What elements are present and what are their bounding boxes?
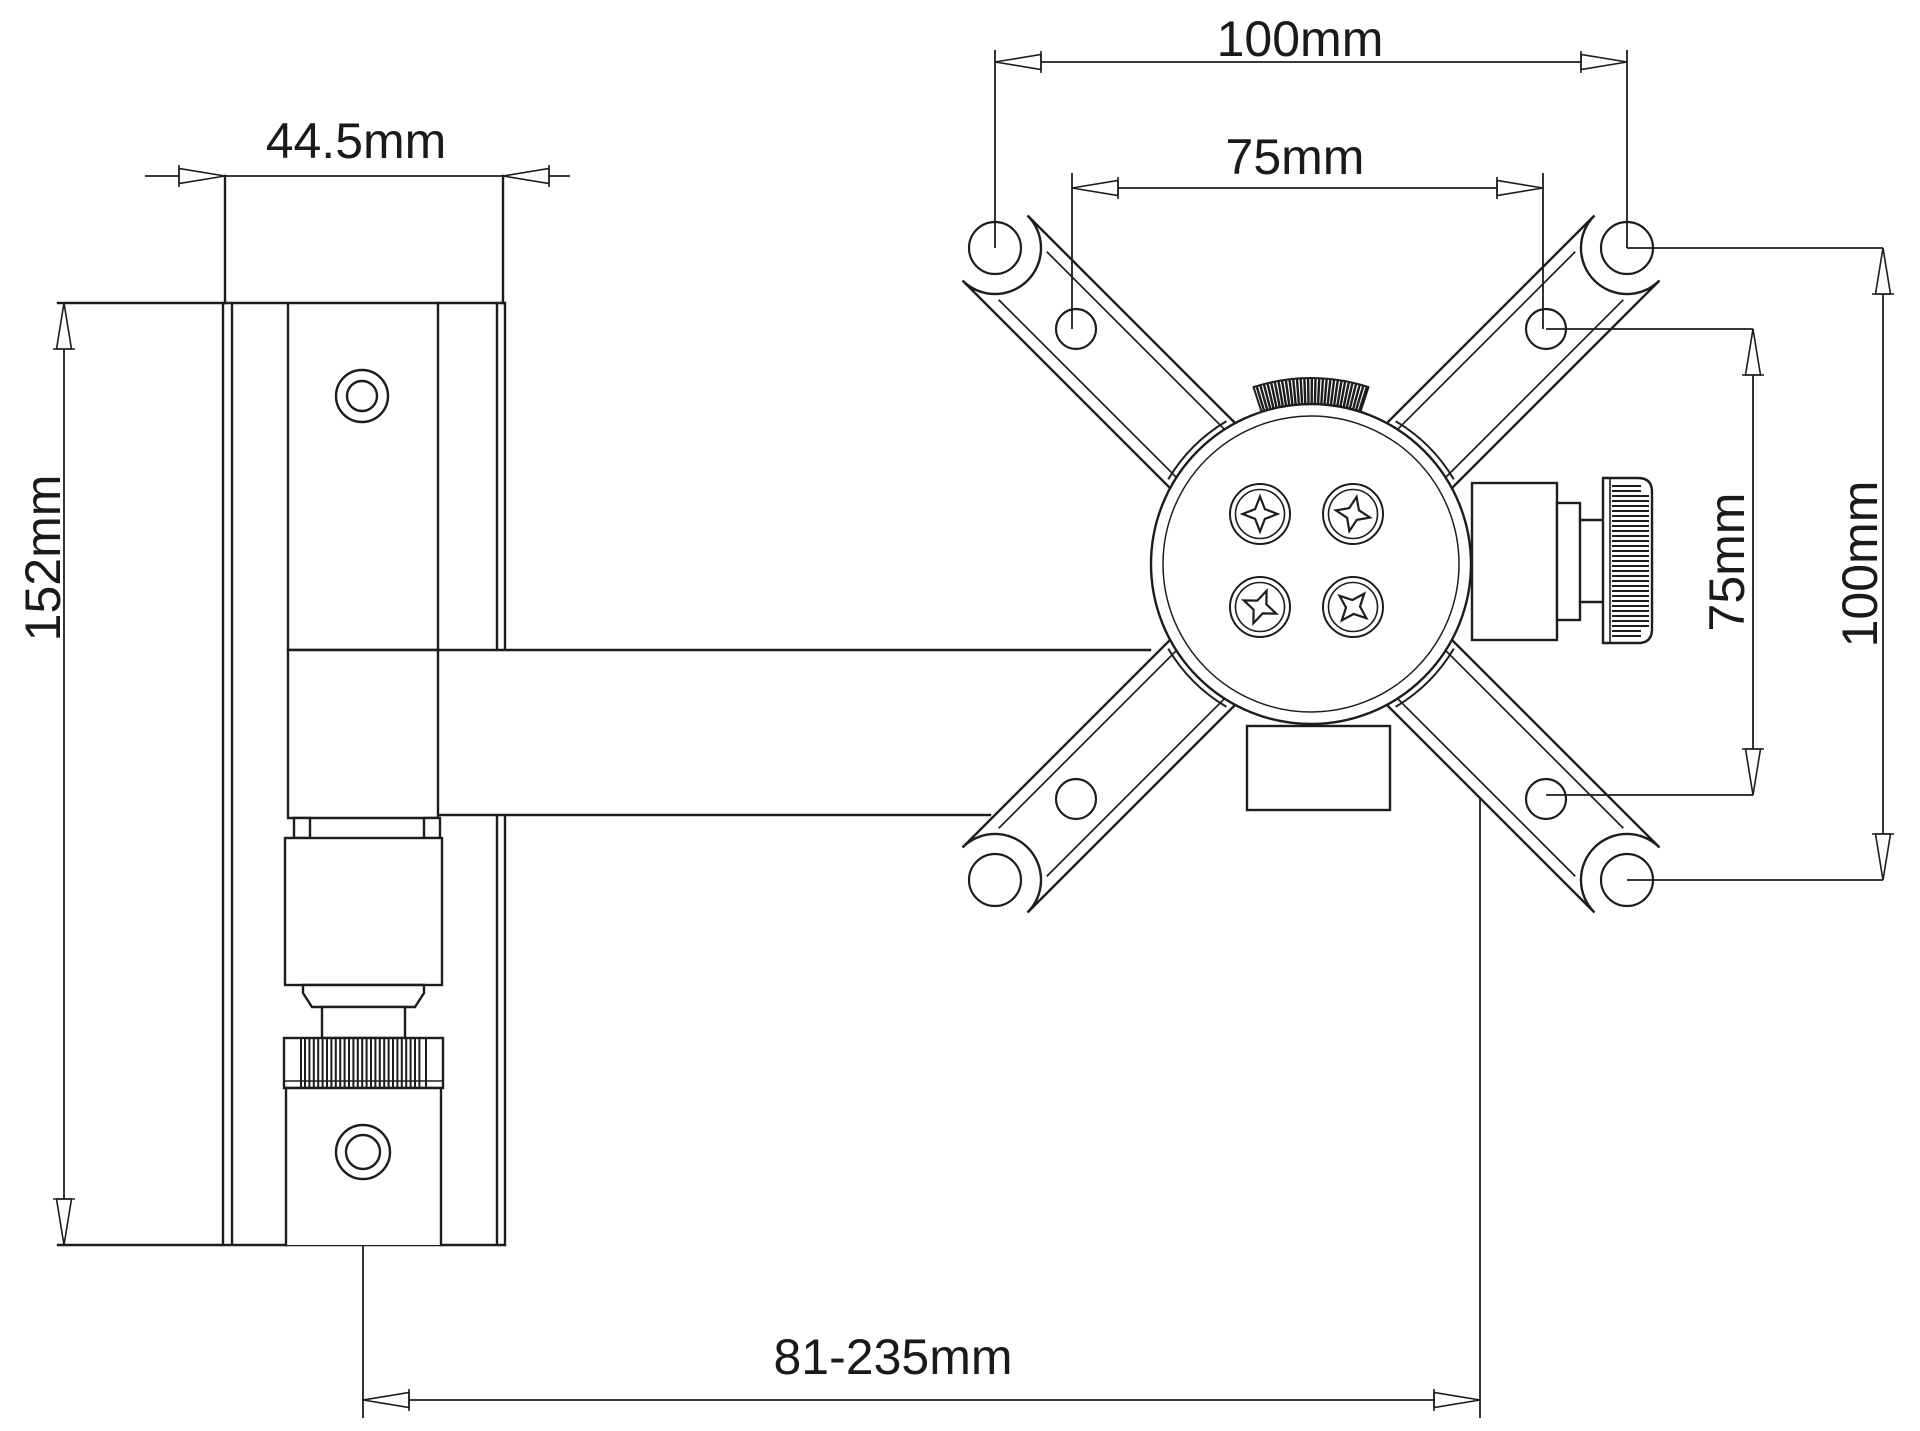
technical-drawing-page: 44.5mm 152mm 100mm 75mm 75mm 100mm 81-23… bbox=[0, 0, 1920, 1431]
hinge-neck-flange bbox=[303, 985, 424, 1007]
tilt-tab-bottom bbox=[1247, 726, 1390, 810]
dim-label-vesa-inner-vertical: 75mm bbox=[1699, 493, 1755, 632]
phillips-screw bbox=[1323, 484, 1383, 544]
dim-label-vesa-inner-horizontal: 75mm bbox=[1226, 129, 1365, 185]
dim-label-vesa-outer-vertical: 100mm bbox=[1832, 481, 1888, 648]
hinge-tab-right bbox=[424, 818, 440, 838]
tension-knob bbox=[284, 1038, 443, 1088]
tilt-knob bbox=[1472, 478, 1652, 643]
dim-label-vesa-outer-horizontal: 100mm bbox=[1217, 11, 1384, 67]
phillips-screw bbox=[1230, 484, 1290, 544]
technical-drawing: 44.5mm 152mm 100mm 75mm 75mm 100mm 81-23… bbox=[0, 0, 1920, 1431]
hinge-front-block bbox=[288, 650, 438, 818]
phillips-screw bbox=[1323, 577, 1383, 637]
vesa-hole-inner bbox=[1526, 779, 1566, 819]
vesa-hole-inner bbox=[1056, 309, 1096, 349]
phillips-screw bbox=[1230, 577, 1290, 637]
hinge-neck-step bbox=[322, 1007, 405, 1038]
vesa-slot-outer bbox=[969, 854, 1021, 906]
hinge-lower-housing bbox=[286, 1088, 441, 1245]
hinge-cylinder bbox=[285, 838, 442, 985]
dim-label-wall-width: 44.5mm bbox=[266, 113, 447, 169]
dim-label-arm-extension: 81-235mm bbox=[774, 1329, 1013, 1385]
hinge-assembly bbox=[284, 650, 443, 1245]
vesa-hole-inner bbox=[1056, 779, 1096, 819]
dim-label-wall-height: 152mm bbox=[15, 475, 71, 642]
hinge-tab-left bbox=[294, 818, 310, 838]
vesa-center-disc bbox=[1151, 404, 1471, 724]
